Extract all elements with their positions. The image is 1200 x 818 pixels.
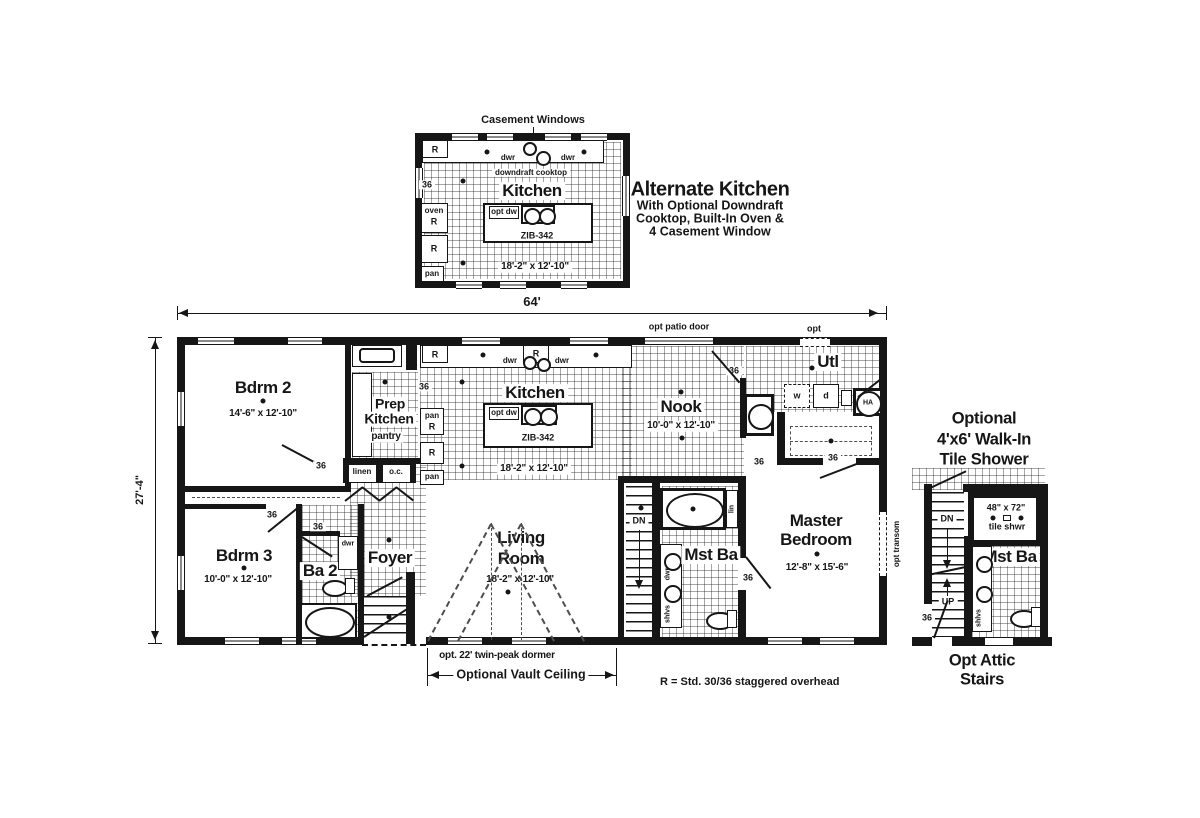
dimension-bar <box>427 648 428 686</box>
window <box>462 337 500 345</box>
dn-label: DN <box>630 516 649 525</box>
refrigerator-label: R <box>431 217 438 226</box>
arrow-down <box>151 631 159 640</box>
prep-sink <box>359 348 395 363</box>
window <box>820 637 854 645</box>
window <box>198 337 234 345</box>
cooktop-burner <box>536 151 551 166</box>
toilet-tank <box>345 578 355 594</box>
drawer-label: dwr <box>552 357 572 365</box>
prep-kitchen-name-line2: Kitchen <box>361 412 416 427</box>
linen-label: linen <box>353 468 372 476</box>
island-model-label: ZIB-342 <box>519 433 558 442</box>
alt-kitchen-note-title: Alternate Kitchen <box>631 180 790 201</box>
dn-arrow-stem <box>947 528 948 562</box>
drawer-label: dwr <box>500 357 520 365</box>
downdraft-cooktop-label: downdraft cooktop <box>492 169 570 177</box>
cooktop-burner <box>537 358 551 372</box>
arrow-right <box>605 671 614 679</box>
opt-dishwasher-label: opt dw <box>491 208 517 216</box>
window <box>448 637 482 645</box>
closet-shelf-line <box>192 497 340 498</box>
wall-segment <box>777 412 785 462</box>
pantry-label: pantry <box>368 432 403 443</box>
wall-segment <box>963 484 1048 492</box>
master-bath-name: Mst Ba <box>681 546 740 564</box>
wall-segment <box>964 536 972 638</box>
window <box>456 281 482 289</box>
opt-window-label: opt <box>807 324 821 333</box>
window <box>177 556 185 590</box>
toilet-tank <box>1031 607 1041 627</box>
tile-shower-label: tile shwr <box>989 522 1026 531</box>
shower-title-line3: Tile Shower <box>939 451 1028 468</box>
drawer-label: dwr <box>342 540 354 547</box>
fixture-dot <box>594 353 599 358</box>
patio-door <box>645 337 713 345</box>
depth-dimension-label: 27'-4" <box>135 475 147 505</box>
dimension-tick <box>148 643 162 644</box>
bdrm3-size: 10'-0" x 12'-10" <box>204 575 272 586</box>
arrow-up <box>151 340 159 349</box>
width-dimension-label: 64' <box>520 295 544 309</box>
wall-segment <box>777 458 823 465</box>
refrigerator-label: R <box>429 448 436 457</box>
wall-segment <box>185 504 266 509</box>
linen-label: lin <box>728 505 735 513</box>
kitchen-size: 18'-2" x 12'-10" <box>497 464 571 475</box>
shelves-label: shlvs <box>975 609 982 627</box>
wall-segment <box>302 531 340 536</box>
opt-dishwasher-label: opt dw <box>491 409 517 417</box>
master-name-line1: Master <box>790 512 842 530</box>
sink-bowl <box>540 408 558 426</box>
shower-size-label: 48" x 72" <box>987 503 1026 512</box>
wall-segment <box>185 486 351 492</box>
dn-arrow-head <box>943 560 951 569</box>
foyer-name: Foyer <box>365 549 415 567</box>
dryer-label: d <box>823 391 829 400</box>
fixture-dot <box>815 552 820 557</box>
opt-window <box>800 338 830 347</box>
window <box>500 281 526 289</box>
overhead-note: R = Std. 30/36 staggered overhead <box>660 676 839 688</box>
wall-segment <box>738 590 746 637</box>
oven-label: oven <box>425 207 444 215</box>
door-size-36: 36 <box>264 510 280 519</box>
fixture-dot <box>460 380 465 385</box>
bdrm2-name: Bdrm 2 <box>235 379 291 397</box>
fixture-dot <box>506 590 511 595</box>
cooktop-burner <box>523 142 537 156</box>
fixture-dot <box>242 566 247 571</box>
opt-transom-label: opt transom <box>893 521 901 567</box>
refrigerator-label: R <box>431 244 438 253</box>
wall-segment <box>652 482 660 637</box>
refrigerator-label: R <box>432 145 439 154</box>
dimension-tick <box>177 306 178 320</box>
vault-ridge-line <box>491 523 492 640</box>
dimension-tick <box>148 337 162 338</box>
window <box>768 637 802 645</box>
shelves-label: shlvs <box>664 605 671 623</box>
fixture-dot <box>639 506 644 511</box>
door-size-36: 36 <box>751 457 767 466</box>
fixture-dot <box>383 380 388 385</box>
window <box>288 337 322 345</box>
sink-bowl <box>976 586 993 603</box>
door-size-36: 36 <box>313 461 329 470</box>
fixture-dot <box>1019 516 1024 521</box>
bathtub-basin <box>305 607 355 638</box>
fixture-dot <box>481 353 486 358</box>
pantry-label: pan <box>425 412 439 420</box>
pantry-label: pan <box>425 270 439 278</box>
window <box>225 637 259 645</box>
alt-kitchen-note-line3: 4 Casement Window <box>649 225 770 238</box>
attic-caption-line2: Stairs <box>960 671 1004 688</box>
toilet-tank <box>727 610 737 628</box>
pantry-label: pan <box>425 473 439 481</box>
refrigerator-label: R <box>429 422 436 431</box>
vault-ceiling-note: Optional Vault Ceiling <box>453 668 588 681</box>
window <box>561 281 587 289</box>
furnace-label: HA <box>863 399 873 406</box>
window-size-36: 36 <box>419 180 435 189</box>
dimension-tick <box>886 306 887 320</box>
door-size-36: 36 <box>740 573 756 582</box>
door-size-36: 36 <box>919 613 935 622</box>
door-size-36: 36 <box>310 522 326 531</box>
bath2-name: Ba 2 <box>300 562 340 580</box>
island-model-label: ZIB-342 <box>518 231 557 240</box>
alt-kitchen-size: 18'-2" x 12'-10" <box>498 262 572 273</box>
fixture-dot <box>485 150 490 155</box>
refrigerator-label: R <box>432 350 439 359</box>
fixture-dot <box>460 464 465 469</box>
window-size-36: 36 <box>416 382 432 391</box>
shower-title-line2: 4'x6' Walk-In <box>937 431 1031 448</box>
fixture-dot <box>261 399 266 404</box>
drawer-label: dwr <box>558 154 578 162</box>
door-opening <box>932 637 952 646</box>
nook-size: 10'-0" x 12'-10" <box>644 421 718 432</box>
drawer-label: dwr <box>498 154 518 162</box>
drain <box>1003 515 1011 521</box>
sink-bowl <box>976 556 993 573</box>
attic-caption-line1: Opt Attic <box>949 652 1015 669</box>
dn-label: DN <box>938 514 957 523</box>
fixture-dot <box>387 538 392 543</box>
wall-segment <box>406 345 417 370</box>
window <box>985 637 1013 646</box>
nook-name: Nook <box>658 398 705 416</box>
wall-segment <box>618 476 746 483</box>
fixture-dot <box>582 150 587 155</box>
casement-windows-label: Casement Windows <box>481 115 585 127</box>
alt-kitchen-room-name: Kitchen <box>499 182 565 200</box>
master-size: 12'-8" x 15'-6" <box>786 563 848 574</box>
arrow-right <box>869 309 878 317</box>
utility-name: Utl <box>814 353 841 371</box>
window <box>570 337 608 345</box>
arrow-left <box>430 671 439 679</box>
floor-plan-canvas: Casement Windows R dwr dwr downdraft coo… <box>0 0 1200 818</box>
water-heater <box>748 404 774 430</box>
window <box>622 176 630 216</box>
dormer-note: opt. 22' twin-peak dormer <box>439 651 555 662</box>
prep-kitchen-name-line1: Prep <box>372 397 408 412</box>
window <box>177 392 185 426</box>
entry-opening <box>362 637 426 646</box>
up-arrow-stem <box>947 586 948 596</box>
utility-cabinet <box>841 390 852 406</box>
drawer-label: dwr <box>664 568 671 580</box>
fixture-dot <box>461 261 466 266</box>
wall-segment <box>618 482 624 637</box>
bdrm2-size: 14'-6" x 12'-10" <box>229 409 297 420</box>
fixture-dot <box>680 436 685 441</box>
window <box>512 637 546 645</box>
dn-arrow-stem <box>639 530 640 580</box>
fixture-dot <box>829 439 834 444</box>
door-size-36: 36 <box>825 453 841 462</box>
sink-bowl <box>539 208 556 225</box>
dimension-bar <box>616 648 617 686</box>
wall-segment <box>924 484 932 604</box>
master-name-line2: Bedroom <box>780 531 852 549</box>
vault-ridge-line <box>521 523 522 640</box>
kitchen-name: Kitchen <box>502 384 568 402</box>
fixture-dot <box>691 507 696 512</box>
wall-segment <box>411 464 416 483</box>
sink-bowl <box>664 585 682 603</box>
shower-title-line1: Optional <box>952 410 1017 427</box>
arrow-left <box>179 309 188 317</box>
fixture-dot <box>461 179 466 184</box>
dn-arrow-head <box>635 580 643 589</box>
washer-label: w <box>793 391 800 400</box>
opt-patio-door-label: opt patio door <box>649 322 710 331</box>
fixture-dot <box>991 516 996 521</box>
fixture-dot <box>679 390 684 395</box>
cooktop-burner <box>523 356 537 370</box>
bdrm3-name: Bdrm 3 <box>216 547 272 565</box>
oc-label: o.c. <box>389 468 403 476</box>
fixture-dot <box>810 366 815 371</box>
opt-transom-window <box>879 512 887 576</box>
depth-dimension-line <box>155 337 156 643</box>
width-dimension-line <box>177 313 887 314</box>
